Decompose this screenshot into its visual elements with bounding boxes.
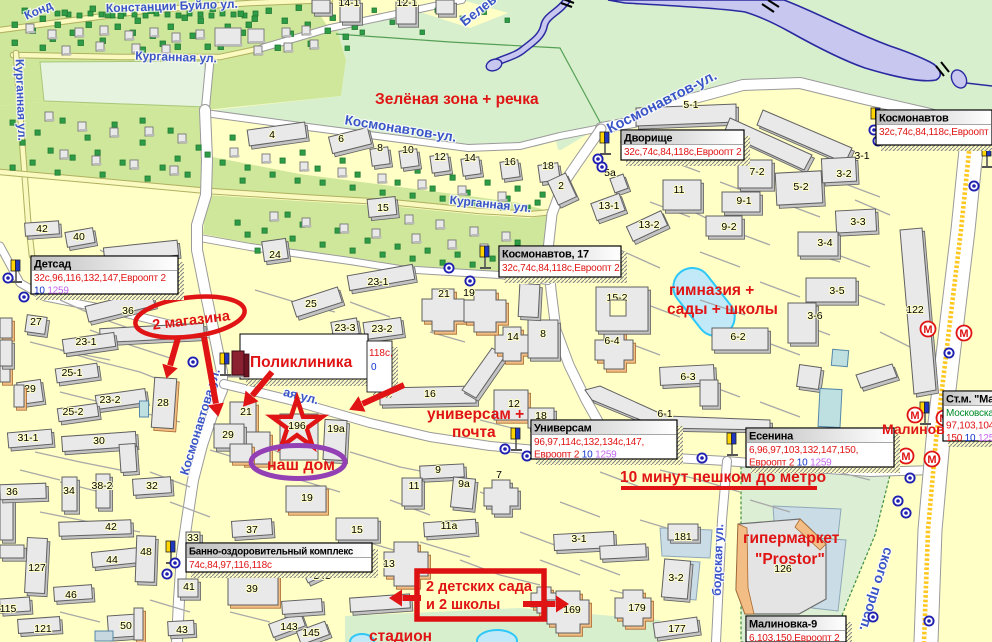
svg-text:37: 37 (246, 524, 258, 536)
svg-text:10 1259: 10 1259 (34, 286, 69, 297)
svg-text:11a: 11a (441, 520, 458, 532)
svg-text:Дворище: Дворище (624, 133, 672, 145)
svg-text:16: 16 (504, 156, 516, 168)
svg-text:74с,84,97,116,118с: 74с,84,97,116,118с (189, 560, 272, 571)
svg-text:15: 15 (377, 202, 389, 214)
svg-text:36: 36 (6, 486, 18, 498)
svg-text:наш дом: наш дом (267, 457, 335, 474)
svg-text:23-3: 23-3 (334, 322, 355, 334)
svg-text:41: 41 (183, 581, 195, 593)
svg-text:32с,74с,84,118с,Евроопт: 32с,74с,84,118с,Евроопт (879, 127, 989, 138)
svg-text:Поликлиника: Поликлиника (250, 354, 353, 371)
svg-text:Ст.м. "Ма: Ст.м. "Ма (946, 394, 992, 406)
svg-text:14: 14 (507, 331, 519, 343)
svg-text:32с,74с,84,118с,Евроопт 2: 32с,74с,84,118с,Евроопт 2 (502, 263, 620, 274)
svg-text:6-4: 6-4 (604, 335, 619, 347)
svg-text:13-2: 13-2 (638, 219, 659, 231)
svg-text:почта: почта (452, 424, 496, 441)
svg-text:13: 13 (383, 558, 395, 570)
svg-text:44: 44 (106, 554, 118, 566)
svg-text:7: 7 (496, 469, 502, 481)
svg-text:19: 19 (301, 492, 313, 504)
svg-text:M: M (910, 410, 919, 422)
svg-text:Евроопт 2 10 1259: Евроопт 2 10 1259 (749, 458, 832, 469)
svg-text:34: 34 (63, 485, 75, 497)
svg-text:0: 0 (371, 362, 377, 373)
svg-text:97,103,104,: 97,103,104, (946, 421, 992, 432)
svg-text:30: 30 (93, 435, 105, 447)
svg-text:32: 32 (146, 480, 158, 492)
svg-text:36: 36 (122, 305, 134, 317)
svg-text:48: 48 (140, 546, 152, 558)
svg-text:28: 28 (157, 397, 169, 409)
svg-text:Малиновка-9: Малиновка-9 (749, 619, 817, 631)
svg-text:M: M (959, 328, 968, 340)
svg-text:24: 24 (269, 249, 281, 261)
svg-text:Банно-оздоровительный комплекс: Банно-оздоровительный комплекс (189, 547, 354, 558)
svg-text:14: 14 (464, 152, 476, 164)
svg-text:универсам +: универсам + (427, 406, 524, 423)
svg-text:42: 42 (105, 521, 117, 533)
svg-text:3-2: 3-2 (668, 572, 683, 584)
svg-text:Зелёная зона + речка: Зелёная зона + речка (375, 91, 539, 108)
svg-text:122: 122 (906, 304, 924, 316)
svg-text:127: 127 (28, 562, 46, 574)
svg-text:3-5: 3-5 (829, 285, 844, 297)
svg-text:5-2: 5-2 (793, 181, 808, 193)
svg-text:2 детских сада: 2 детских сада (426, 579, 533, 595)
svg-text:3-4: 3-4 (817, 237, 832, 249)
svg-text:9: 9 (435, 464, 441, 476)
svg-text:21: 21 (438, 288, 450, 300)
svg-text:38-2: 38-2 (91, 480, 112, 492)
svg-text:9-2: 9-2 (721, 221, 736, 233)
svg-text:6,96,97,103,132,147,150,: 6,96,97,103,132,147,150, (749, 445, 858, 456)
svg-text:19: 19 (463, 287, 475, 299)
svg-text:181: 181 (674, 531, 692, 543)
svg-text:15: 15 (351, 524, 363, 536)
svg-text:13-1: 13-1 (598, 200, 619, 212)
svg-text:M: M (923, 324, 932, 336)
svg-text:12: 12 (434, 151, 446, 163)
svg-text:23-1: 23-1 (75, 336, 96, 348)
svg-text:196: 196 (288, 420, 306, 432)
svg-text:43: 43 (176, 624, 188, 636)
svg-text:121: 121 (34, 623, 52, 635)
svg-text:25: 25 (305, 298, 317, 310)
svg-text:6-2: 6-2 (730, 331, 745, 343)
svg-text:и 2 школы: и 2 школы (426, 597, 500, 613)
svg-text:9-1: 9-1 (736, 195, 751, 207)
svg-text:стадион: стадион (369, 628, 432, 642)
svg-text:31-1: 31-1 (17, 432, 38, 444)
svg-text:3-3: 3-3 (850, 216, 865, 228)
svg-text:150 10 125: 150 10 125 (946, 433, 992, 444)
svg-text:M: M (927, 454, 936, 466)
svg-text:"Prostor": "Prostor" (755, 551, 825, 568)
svg-text:50: 50 (120, 620, 132, 632)
svg-text:Космонавтов: Космонавтов (879, 113, 949, 125)
svg-text:177: 177 (668, 623, 686, 635)
svg-text:25-1: 25-1 (61, 367, 82, 379)
svg-text:32с,74с,84,118с,Евроопт 2: 32с,74с,84,118с,Евроопт 2 (624, 147, 742, 158)
svg-text:7-2: 7-2 (749, 166, 764, 178)
svg-text:Универсам: Универсам (534, 423, 592, 435)
svg-text:Есенина: Есенина (749, 431, 794, 443)
svg-text:12-1: 12-1 (396, 0, 417, 9)
svg-text:32с,96,116,132,147,Евроопт 2: 32с,96,116,132,147,Евроопт 2 (34, 273, 166, 284)
svg-text:27: 27 (30, 316, 42, 328)
svg-text:бодская ул.: бодская ул. (710, 524, 727, 597)
svg-text:гимназия +: гимназия + (669, 282, 754, 299)
svg-text:23-2: 23-2 (371, 323, 392, 335)
svg-text:25-2: 25-2 (62, 406, 83, 418)
svg-text:96,97,114с,132,134с,147,: 96,97,114с,132,134с,147, (534, 437, 644, 448)
svg-text:143: 143 (280, 621, 298, 633)
svg-text:Курганная ул.: Курганная ул. (135, 49, 217, 66)
svg-text:Детсад: Детсад (34, 259, 71, 271)
svg-text:Московская: Московская (946, 408, 992, 419)
svg-text:Малинов: Малинов (882, 421, 945, 437)
svg-text:29: 29 (222, 429, 234, 441)
svg-text:Евроопт 2 10 1259: Евроопт 2 10 1259 (534, 450, 617, 461)
svg-text:179: 179 (628, 602, 646, 614)
svg-text:6-3: 6-3 (680, 371, 695, 383)
svg-text:11: 11 (409, 480, 420, 492)
svg-text:16: 16 (424, 388, 436, 400)
svg-text:33: 33 (187, 532, 199, 544)
svg-text:14-1: 14-1 (338, 0, 359, 9)
svg-text:42: 42 (36, 223, 48, 235)
svg-text:6-1: 6-1 (657, 408, 672, 420)
svg-text:23-1: 23-1 (367, 276, 388, 288)
svg-text:115: 115 (0, 603, 17, 615)
svg-text:сады + школы: сады + школы (667, 301, 778, 318)
svg-text:Космонавтов, 17: Космонавтов, 17 (502, 249, 589, 261)
svg-text:8: 8 (377, 142, 383, 154)
svg-text:5-1: 5-1 (683, 99, 698, 111)
svg-text:39: 39 (246, 583, 258, 595)
svg-text:40: 40 (73, 231, 85, 243)
svg-text:6,103,150,Евроопт 2: 6,103,150,Евроопт 2 (749, 633, 840, 642)
svg-text:9a: 9a (458, 478, 470, 490)
svg-text:19a: 19a (327, 423, 345, 435)
svg-text:118с,: 118с, (369, 348, 393, 359)
svg-text:6: 6 (338, 133, 344, 145)
svg-text:2: 2 (558, 180, 564, 192)
svg-text:8: 8 (540, 328, 546, 340)
svg-text:18: 18 (542, 160, 554, 172)
svg-text:4: 4 (269, 129, 275, 141)
svg-text:3-6: 3-6 (807, 310, 822, 322)
svg-text:21: 21 (240, 406, 252, 418)
svg-text:3-1: 3-1 (571, 533, 586, 545)
svg-text:гипермаркет: гипермаркет (743, 530, 840, 547)
svg-text:M: M (901, 451, 910, 463)
svg-text:46: 46 (65, 589, 77, 601)
svg-text:3-2: 3-2 (836, 168, 851, 180)
svg-text:145: 145 (302, 627, 320, 639)
svg-text:10: 10 (402, 144, 414, 156)
svg-text:Курганная ул.: Курганная ул. (13, 59, 30, 141)
svg-text:11: 11 (674, 184, 685, 196)
svg-text:23-2: 23-2 (99, 394, 120, 406)
